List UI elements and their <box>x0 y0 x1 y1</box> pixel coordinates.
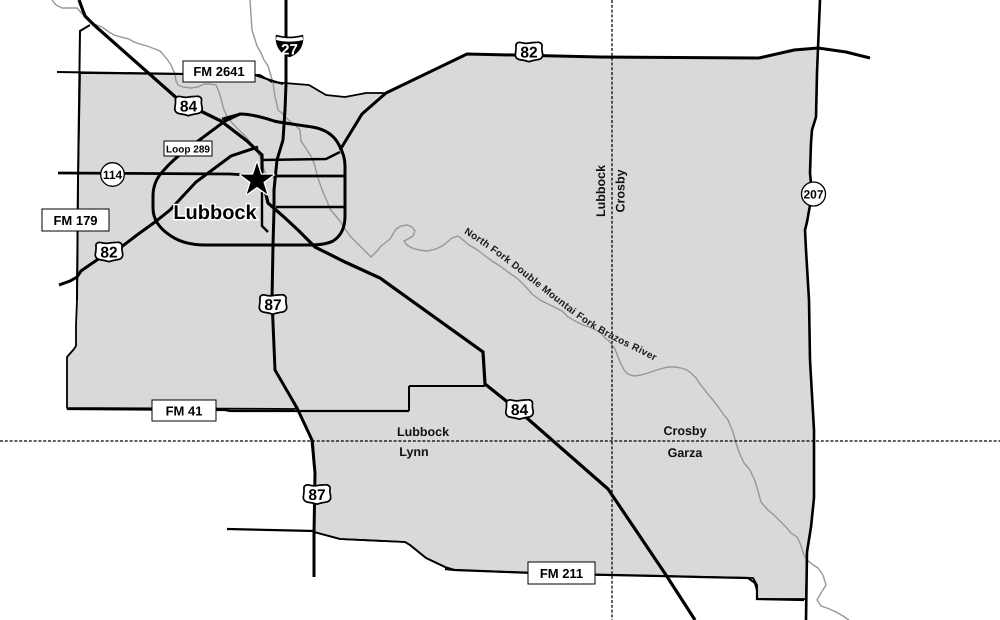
svg-text:82: 82 <box>520 45 537 62</box>
svg-text:87: 87 <box>308 487 325 504</box>
svg-text:FM 2641: FM 2641 <box>193 64 244 79</box>
svg-text:FM 179: FM 179 <box>53 213 97 228</box>
svg-text:Lubbock: Lubbock <box>397 425 449 439</box>
svg-text:114: 114 <box>103 168 123 182</box>
svg-text:Lubbock: Lubbock <box>173 202 257 224</box>
svg-text:FM 211: FM 211 <box>540 566 583 581</box>
svg-text:82: 82 <box>100 245 117 262</box>
svg-text:Lynn: Lynn <box>399 445 428 459</box>
svg-text:Lubbock: Lubbock <box>594 165 608 217</box>
svg-text:87: 87 <box>264 297 281 314</box>
svg-text:27: 27 <box>281 41 298 58</box>
svg-text:Crosby: Crosby <box>663 424 706 438</box>
svg-text:Loop 289: Loop 289 <box>166 145 210 156</box>
svg-text:84: 84 <box>180 99 198 116</box>
svg-text:Garza: Garza <box>668 446 704 460</box>
svg-text:Crosby: Crosby <box>614 169 628 212</box>
svg-text:84: 84 <box>511 402 529 419</box>
svg-text:207: 207 <box>803 187 823 201</box>
svg-text:FM 41: FM 41 <box>166 404 203 419</box>
